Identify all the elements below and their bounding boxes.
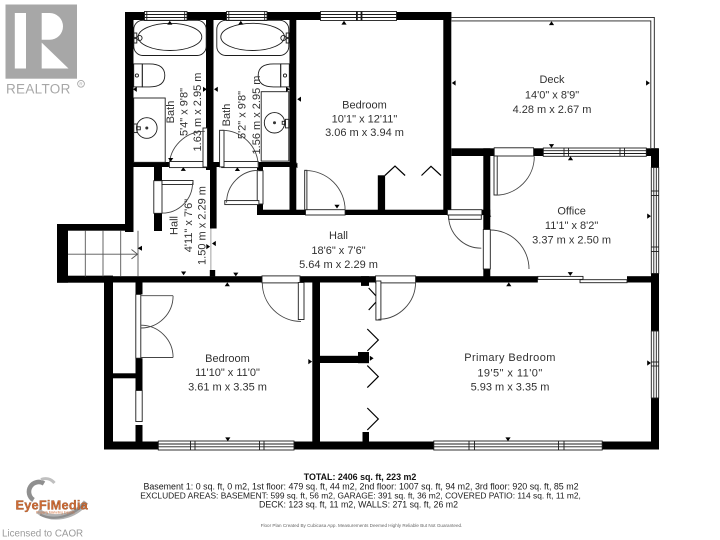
svg-text:5.64 m x 2.29 m: 5.64 m x 2.29 m [299, 259, 378, 271]
svg-text:3.37 m x 2.50 m: 3.37 m x 2.50 m [532, 235, 611, 247]
svg-text:Bedroom: Bedroom [342, 100, 387, 112]
svg-text:18'6" x 7'6": 18'6" x 7'6" [311, 245, 365, 257]
svg-text:5'2" x 9'8": 5'2" x 9'8" [237, 91, 249, 139]
svg-text:Office: Office [557, 206, 586, 218]
svg-text:1.56 m x 2.95 m: 1.56 m x 2.95 m [251, 76, 263, 155]
svg-text:11'10" x 11'0": 11'10" x 11'0" [195, 367, 260, 379]
svg-text:REALTOR: REALTOR [6, 82, 71, 97]
svg-text:DECK: 123 sq. ft, 11 m2, WALLS: DECK: 123 sq. ft, 11 m2, WALLS: 271 sq. … [259, 500, 458, 510]
svg-text:11'1" x 8'2": 11'1" x 8'2" [545, 220, 598, 232]
svg-text:TOTAL: 2406 sq. ft, 223 m2: TOTAL: 2406 sq. ft, 223 m2 [304, 472, 417, 482]
svg-text:4.28 m x 2.67 m: 4.28 m x 2.67 m [513, 104, 592, 116]
svg-text:Deck: Deck [539, 74, 565, 86]
svg-text:14'0" x 8'9": 14'0" x 8'9" [525, 90, 579, 102]
svg-text:Licensed to CAOR: Licensed to CAOR [2, 529, 83, 540]
svg-text:Property Marketing Experts: Property Marketing Experts [36, 511, 75, 515]
svg-text:1.63 m x 2.95 m: 1.63 m x 2.95 m [192, 73, 204, 152]
svg-text:4'11" x 7'6": 4'11" x 7'6" [183, 199, 195, 252]
svg-text:5'4" x 9'8": 5'4" x 9'8" [178, 88, 190, 136]
svg-text:Hall: Hall [169, 216, 181, 235]
svg-text:10'1" x 12'11": 10'1" x 12'11" [332, 114, 398, 126]
svg-text:Bath: Bath [165, 101, 177, 124]
svg-text:Hall: Hall [329, 230, 348, 242]
svg-text:Primary Bedroom: Primary Bedroom [464, 352, 556, 364]
svg-text:1.50 m x 2.29 m: 1.50 m x 2.29 m [197, 186, 209, 265]
svg-text:3.61 m x 3.35 m: 3.61 m x 3.35 m [188, 382, 267, 394]
svg-text:5.93 m x 3.35 m: 5.93 m x 3.35 m [471, 382, 550, 394]
svg-text:Bath: Bath [221, 104, 233, 127]
svg-text:Bedroom: Bedroom [205, 353, 250, 365]
svg-text:Floor Plan Created By Cubicasa: Floor Plan Created By Cubicasa App. Meas… [261, 523, 463, 528]
svg-text:19'5" x 11'0": 19'5" x 11'0" [477, 368, 542, 380]
svg-text:3.06 m x 3.94 m: 3.06 m x 3.94 m [325, 127, 404, 139]
